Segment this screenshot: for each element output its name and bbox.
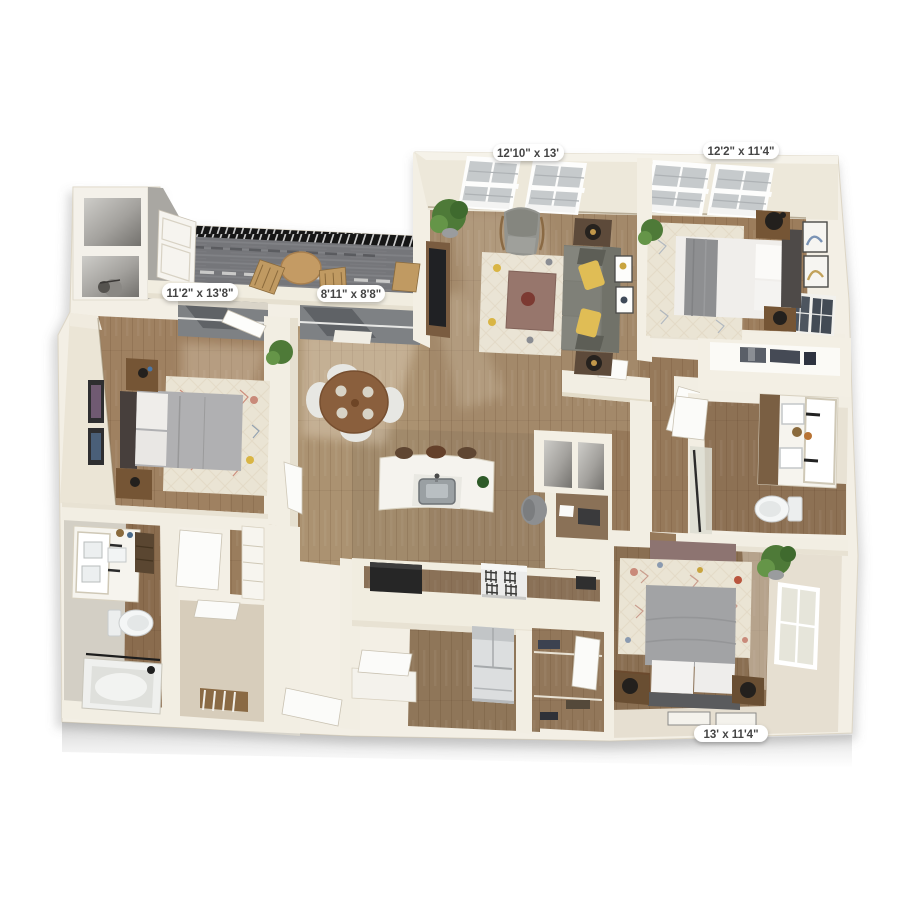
svg-text:11'2" x 13'8": 11'2" x 13'8" xyxy=(167,288,234,300)
svg-text:12'10" x 13': 12'10" x 13' xyxy=(497,148,559,160)
svg-text:12'2" x 11'4": 12'2" x 11'4" xyxy=(708,146,775,158)
svg-text:8'11" x 8'8": 8'11" x 8'8" xyxy=(321,289,382,301)
svg-text:13' x 11'4": 13' x 11'4" xyxy=(703,729,758,741)
